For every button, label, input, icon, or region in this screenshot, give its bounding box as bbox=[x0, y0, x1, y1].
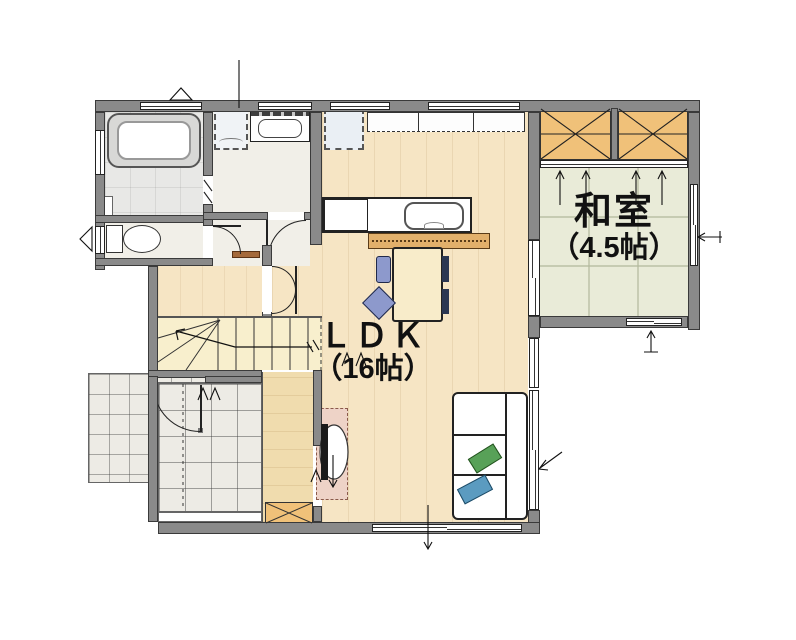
tv bbox=[320, 424, 348, 480]
washitsu-label: 和室 （4.5帖） bbox=[538, 192, 690, 264]
triangle-bath-north bbox=[170, 88, 192, 100]
washitsu-name: 和室 bbox=[538, 192, 690, 233]
vent-arrows bbox=[80, 60, 722, 549]
shoe-cabinet-diagonal bbox=[266, 503, 312, 523]
ldk-name: ＬＤＫ bbox=[296, 318, 450, 354]
triangle-toilet-west bbox=[80, 227, 92, 251]
arrow-washitsu-east bbox=[698, 231, 722, 243]
arrow-ldk-south bbox=[424, 505, 432, 549]
arrow-washitsu-south bbox=[644, 331, 658, 352]
arrow-ldk-east bbox=[539, 452, 562, 470]
tv-body bbox=[321, 424, 328, 480]
ldk-size: （16帖） bbox=[296, 354, 450, 385]
washitsu-size: （4.5帖） bbox=[538, 233, 690, 264]
closet-x-marks bbox=[541, 109, 687, 159]
bath-door-marks bbox=[204, 180, 212, 203]
floor-plan: 和室 （4.5帖） ＬＤＫ （16帖） bbox=[0, 0, 796, 640]
ldk-label: ＬＤＫ （16帖） bbox=[296, 318, 450, 385]
